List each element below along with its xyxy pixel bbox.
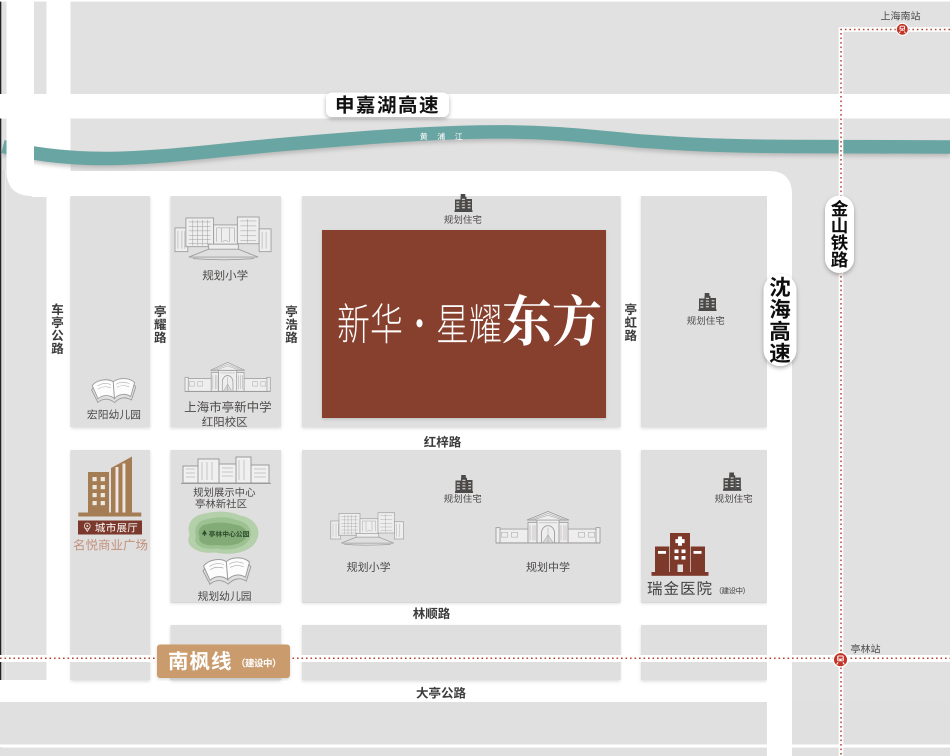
svg-text:名悦商业广场: 名悦商业广场 <box>73 535 148 554</box>
svg-text:规划幼儿园: 规划幼儿园 <box>198 588 252 604</box>
svg-text:黄浦江: 黄浦江 <box>420 132 473 143</box>
svg-text:申嘉湖高速: 申嘉湖高速 <box>335 89 440 118</box>
svg-text:城市展厅: 城市展厅 <box>95 520 138 535</box>
svg-text:南枫线: 南枫线 <box>168 645 233 675</box>
svg-text:（建设中）: （建设中） <box>715 586 750 597</box>
svg-text:规划小学: 规划小学 <box>202 268 248 284</box>
svg-text:红阳校区: 红阳校区 <box>202 414 248 430</box>
svg-text:大亭公路: 大亭公路 <box>416 683 467 702</box>
svg-text:林顺路: 林顺路 <box>413 603 451 622</box>
svg-text:东方: 东方 <box>502 278 602 357</box>
svg-text:瑞金医院: 瑞金医院 <box>647 577 713 599</box>
svg-text:路: 路 <box>154 327 167 346</box>
svg-text:规划住宅: 规划住宅 <box>687 313 725 327</box>
svg-text:亭林新社区: 亭林新社区 <box>195 496 247 511</box>
svg-text:新华·星耀: 新华·星耀 <box>337 289 502 353</box>
svg-text:规划住宅: 规划住宅 <box>715 491 753 505</box>
svg-text:速: 速 <box>769 337 791 368</box>
svg-text:上海南站: 上海南站 <box>881 7 921 22</box>
svg-text:路: 路 <box>285 327 298 346</box>
svg-text:规划住宅: 规划住宅 <box>444 491 482 505</box>
svg-text:规划小学: 规划小学 <box>347 559 391 575</box>
svg-text:路: 路 <box>624 325 637 344</box>
svg-text:路: 路 <box>51 338 64 357</box>
svg-text:上海市亭新中学: 上海市亭新中学 <box>184 397 272 416</box>
svg-text:规划中学: 规划中学 <box>526 559 570 575</box>
svg-text:宏阳幼儿园: 宏阳幼儿园 <box>87 406 141 422</box>
svg-text:亭林站: 亭林站 <box>851 641 881 656</box>
svg-text:红梓路: 红梓路 <box>424 432 462 451</box>
svg-text:路: 路 <box>831 247 849 272</box>
svg-text:亭林中心公园: 亭林中心公园 <box>209 529 250 539</box>
svg-text:（建设中）: （建设中） <box>236 656 281 670</box>
svg-text:规划住宅: 规划住宅 <box>444 212 482 226</box>
